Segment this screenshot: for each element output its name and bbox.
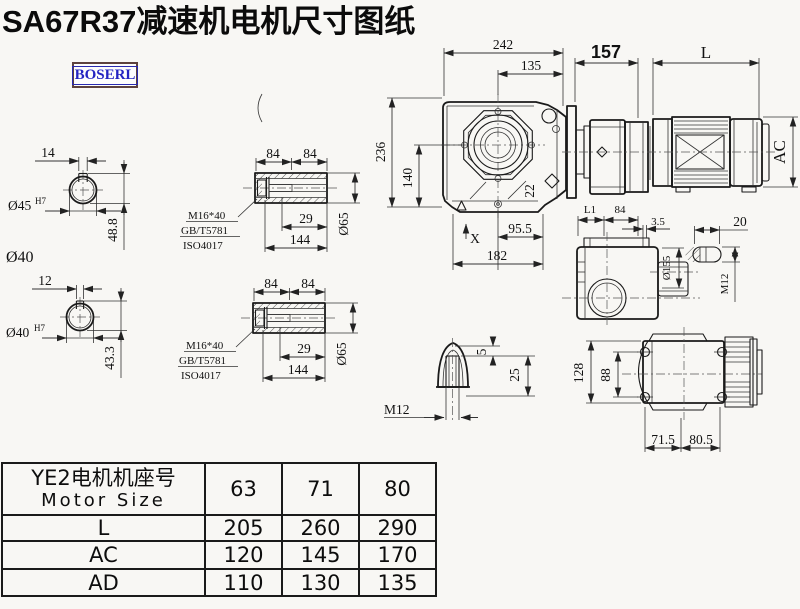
dim-gear-length: 157	[591, 42, 621, 62]
dim-bore-dia: Ø45	[8, 198, 31, 213]
bore-view-output: 12 Ø40 H7 43.3	[6, 273, 127, 378]
gearbox-top-view: 128 88 71.5 80.5	[571, 327, 762, 452]
datum-x: X	[470, 231, 480, 246]
dim-len-b: 84	[303, 146, 317, 161]
motor-side-view: 157 L AC	[562, 42, 798, 198]
dim-motor-length: L	[701, 43, 711, 62]
bore-view-input: 14 Ø45 H7 48.8 Ø40	[6, 145, 130, 266]
value-AC-80: 170	[359, 541, 436, 569]
callout-std-gb: GB/T5781	[181, 225, 228, 237]
row-label-L: L	[2, 515, 205, 541]
dim-top-height: 128	[571, 363, 586, 384]
size-80: 80	[359, 463, 436, 515]
dim-base-b: 182	[487, 248, 507, 263]
breather-plug-detail: 5 25 M12	[384, 338, 535, 420]
dim-slot-len: 20	[733, 214, 747, 229]
drawing-sheet: SA67R37减速机电机尺寸图纸 BOSERL	[0, 0, 800, 609]
dim-width-upper: 135	[521, 58, 542, 73]
callout-bolt: M16*40	[188, 210, 226, 222]
table-row: L 205 260 290	[2, 515, 436, 541]
table-header-row: YE2电机机座号 Motor Size 63 71 80	[2, 463, 436, 515]
motor-size-table: YE2电机机座号 Motor Size 63 71 80 L 205 260 2…	[1, 462, 437, 597]
dim-total-len: 144	[290, 232, 311, 247]
dim-bore-fit: H7	[35, 196, 46, 206]
dim-bore-dia: Ø40	[6, 325, 29, 340]
dim-thread: M12	[719, 274, 731, 295]
dim-foot-b: 80.5	[689, 432, 713, 447]
callout-std-iso: ISO4017	[183, 240, 223, 252]
dim-depth: 25	[507, 368, 522, 382]
dim-key-width: 12	[38, 273, 52, 288]
header-cell-motor-size: YE2电机机座号 Motor Size	[2, 463, 205, 515]
dim-base-a: 95.5	[508, 221, 532, 236]
dim-width: 242	[493, 37, 513, 52]
dim-height: 236	[373, 142, 388, 163]
dim-bore-depth: 48.8	[105, 218, 120, 242]
size-71: 71	[282, 463, 359, 515]
dim-cap: 5	[474, 348, 489, 355]
row-label-AC: AC	[2, 541, 205, 569]
dim-bore-depth: 43.3	[102, 346, 117, 370]
dim-gap: 3.5	[651, 216, 665, 228]
value-AD-63: 110	[205, 569, 282, 596]
size-63: 63	[205, 463, 282, 515]
value-AD-80: 135	[359, 569, 436, 596]
dim-foot-a: 71.5	[651, 432, 675, 447]
hollow-shaft-section-lower	[178, 276, 358, 382]
value-L-71: 260	[282, 515, 359, 541]
hollow-shaft-section: 84 84 29 144 Ø65 M16*40 GB/T5781 ISO4017	[180, 146, 360, 252]
table-row: AC 120 145 170	[2, 541, 436, 569]
header-en: Motor Size	[3, 490, 204, 512]
label-shaft-od: Ø40	[6, 249, 34, 266]
gearbox-front-view: 22 242 135 236 140 95.5	[373, 37, 566, 270]
dim-l1: L1	[584, 204, 596, 216]
dim-plug-offset: 22	[522, 184, 537, 198]
header-cn: YE2电机机座号	[3, 466, 204, 490]
dim-key-width: 14	[41, 145, 55, 160]
dim-bore-fit: H7	[34, 323, 45, 333]
dim-len-a: 84	[266, 146, 280, 161]
row-label-AD: AD	[2, 569, 205, 596]
value-L-80: 290	[359, 515, 436, 541]
callout-thread: M12	[384, 402, 410, 417]
dim-bore-len: 29	[299, 211, 313, 226]
dim-84: 84	[615, 204, 627, 216]
value-AC-71: 145	[282, 541, 359, 569]
gearbox-side-view: L1 84 3.5	[562, 204, 748, 325]
value-AC-63: 120	[205, 541, 282, 569]
dim-bolt-span: 88	[598, 368, 613, 382]
table-row: AD 110 130 135	[2, 569, 436, 596]
dim-flange-dia: Ø155	[661, 255, 673, 280]
dim-shaft-dia: Ø65	[336, 212, 351, 235]
value-L-63: 205	[205, 515, 282, 541]
dim-center-height: 140	[400, 168, 415, 189]
value-AD-71: 130	[282, 569, 359, 596]
dim-motor-dia: AC	[770, 140, 789, 164]
scan-artifact	[258, 94, 262, 122]
